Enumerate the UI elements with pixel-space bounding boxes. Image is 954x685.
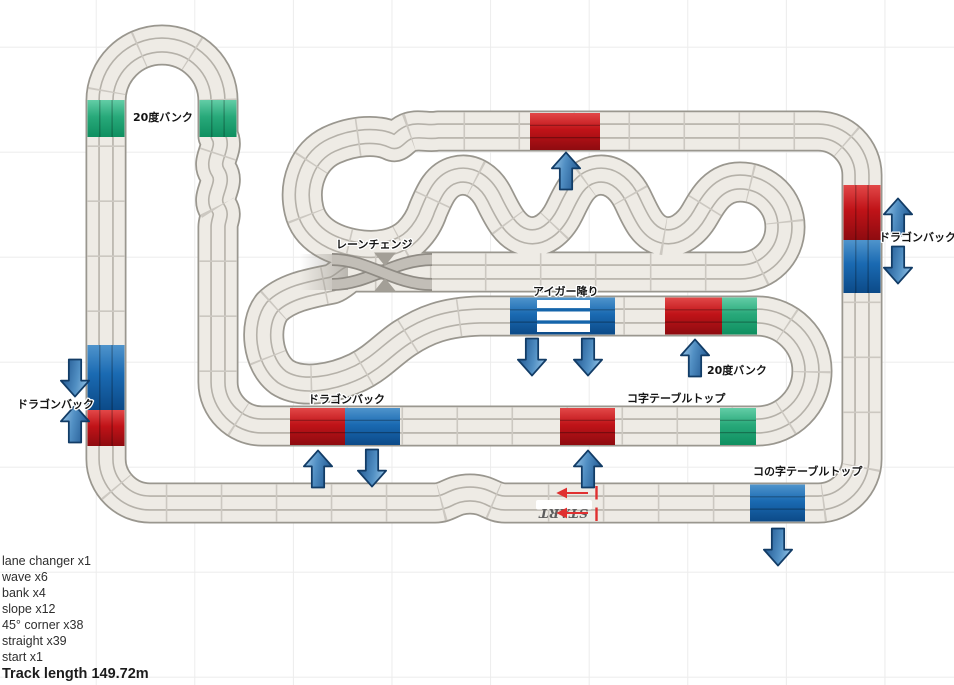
parts-item: wave x6 xyxy=(2,569,149,585)
track-length: Track length 149.72m xyxy=(2,666,149,682)
up-arrow-icon xyxy=(681,339,709,376)
dragonback-center-red-section xyxy=(290,408,345,445)
up-arrow-icon xyxy=(304,450,332,487)
dragonback-right-red-section xyxy=(844,185,881,240)
bank20-center-red-section xyxy=(665,298,722,335)
top-straight-red-section xyxy=(530,113,600,150)
label-tabletop-ko: コの字テーブルトップ xyxy=(753,464,863,478)
label-eiger-drop: アイガー降り xyxy=(533,284,598,298)
bank-section-green-left xyxy=(88,100,125,137)
parts-summary: lane changer x1 wave x6 bank x4 slope x1… xyxy=(2,553,149,682)
label-tabletop-u: コ字テーブルトップ xyxy=(627,391,726,405)
up-arrow-icon xyxy=(574,450,602,487)
parts-item: straight x39 xyxy=(2,633,149,649)
up-arrow-icon xyxy=(61,405,89,442)
down-arrow-icon xyxy=(764,528,792,565)
down-arrow-icon xyxy=(884,246,912,283)
parts-item: 45° corner x38 xyxy=(2,617,149,633)
label-dragonback-right: ドラゴンバック xyxy=(879,230,954,244)
parts-item: lane changer x1 xyxy=(2,553,149,569)
eiger-drop-section xyxy=(510,298,615,335)
tabletop-ko-blue-section xyxy=(750,485,805,522)
tabletop-u-green-section xyxy=(720,408,756,445)
track-designer-canvas: START 20度バンク レーンチェンジ アイガー降り xyxy=(0,0,954,685)
down-arrow-icon xyxy=(61,359,89,396)
label-dragonback-center: ドラゴンバック xyxy=(308,392,385,406)
label-bank20-center: 20度バンク xyxy=(707,363,767,377)
dragonback-left-red-section xyxy=(88,410,125,446)
parts-item: start x1 xyxy=(2,649,149,665)
parts-item: bank x4 xyxy=(2,585,149,601)
label-bank20-topleft: 20度バンク xyxy=(133,110,193,124)
down-arrow-icon xyxy=(358,449,386,486)
dragonback-center-blue-section xyxy=(345,408,400,445)
down-arrow-icon xyxy=(574,338,602,375)
bank-section-green-right xyxy=(200,100,237,137)
bank20-center-green-section xyxy=(722,298,757,335)
up-arrow-icon xyxy=(884,198,912,235)
tabletop-u-red-section xyxy=(560,408,615,445)
label-lane-change: レーンチェンジ xyxy=(336,238,412,251)
label-dragonback-left: ドラゴンバック xyxy=(17,397,94,411)
dragonback-right-blue-section xyxy=(844,240,881,293)
down-arrow-icon xyxy=(518,338,546,375)
parts-item: slope x12 xyxy=(2,601,149,617)
